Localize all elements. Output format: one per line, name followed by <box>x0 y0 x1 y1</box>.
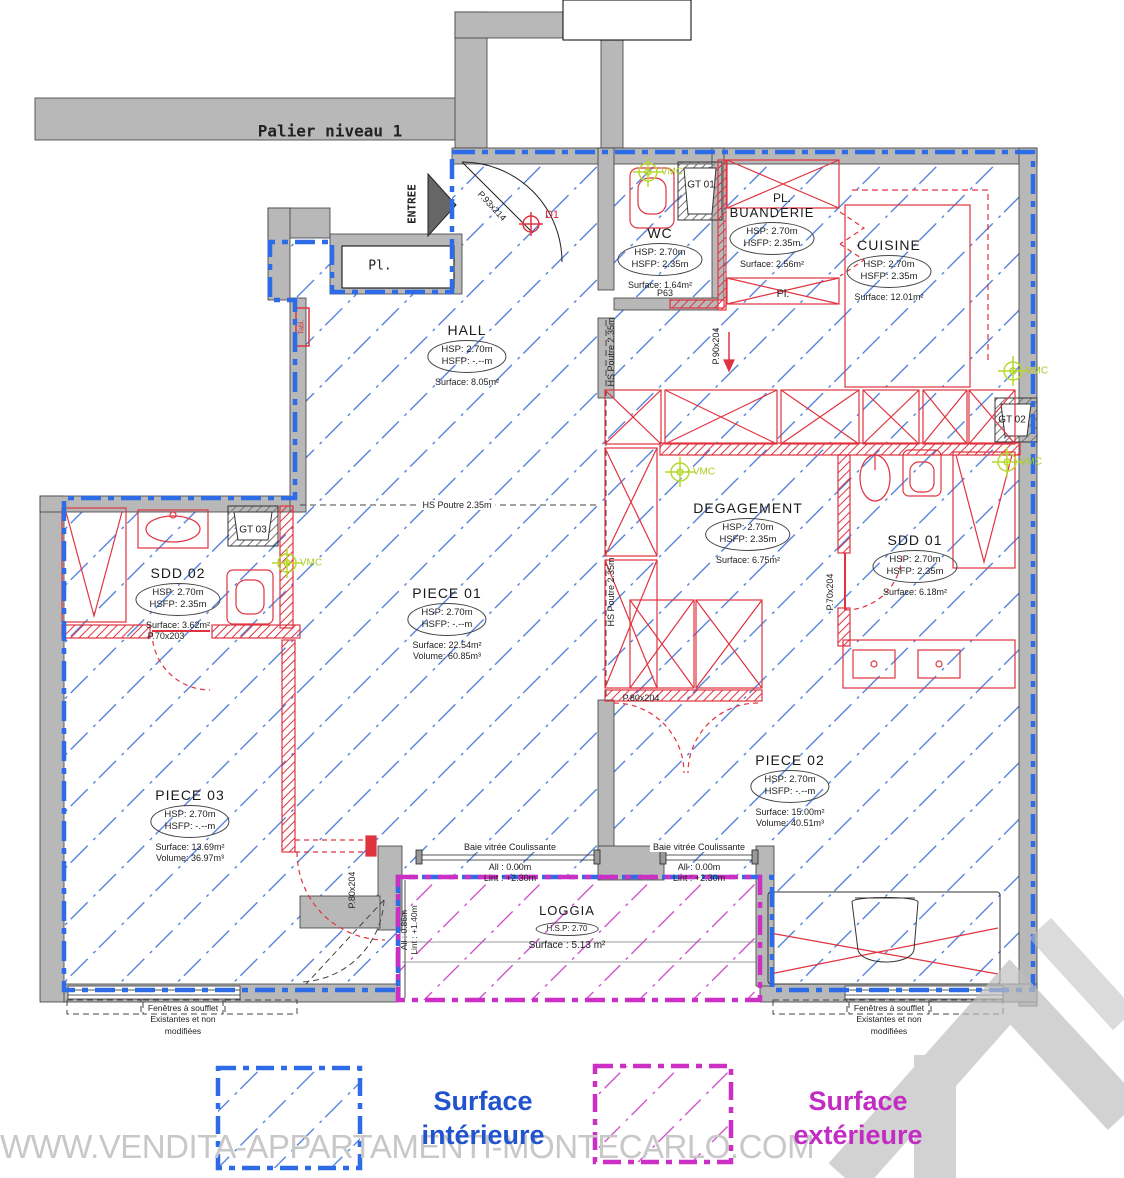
room-heights-oval: HSP: 2.70mHSFP: 2.35m <box>617 243 702 276</box>
door-p80-vertical-label: P.80x204 <box>347 872 357 909</box>
baie-all-label: All : 0.00m <box>678 862 721 872</box>
rail-all-label: All : 0.86m <box>399 910 409 950</box>
vmc-label: VMC <box>661 167 683 178</box>
entry-label: ENTREE <box>406 184 419 224</box>
baie-lint-label: Lint : +2.30m <box>673 873 725 883</box>
room-label-hall: HALL HSP: 2.70mHSFP: -.--m Surface: 8.05… <box>427 322 506 387</box>
room-heights-oval: HSP: 2.70mHSFP: 2.35m <box>872 550 957 583</box>
room-label-sdd01: SDD 01 HSP: 2.70mHSFP: 2.35m Surface: 6.… <box>872 532 957 597</box>
door-p90-label: P.90x204 <box>711 328 721 365</box>
beam-label: HS Poutre 2.35m <box>606 317 616 386</box>
vmc-label: VMC <box>300 558 322 569</box>
room-label-piece02: PIECE 02 HSP: 2.70mHSFP: -.--m Surface: … <box>750 752 829 828</box>
room-heights-oval: HSP: 2.70mHSFP: 2.35m <box>729 222 814 255</box>
room-heights-oval: HSP: 2.70mHSFP: -.--m <box>750 770 829 803</box>
soufflet-note-left: Fenêtres à soufflet Existantes et non mo… <box>128 1003 238 1037</box>
rail-lint-label: Lint : +1.40m <box>409 905 419 954</box>
tabl-label: Tabl. <box>299 320 306 335</box>
gt03-label: GT 03 <box>239 525 267 536</box>
baie-name-label: Baie vitrée Coulissante <box>461 842 559 852</box>
entry-closet-label: Pl. <box>368 259 391 274</box>
room-heights-oval: HSP: 2.70mHSFP: 2.35m <box>705 518 790 551</box>
room-heights-oval: HSP: 2.70mHSFP: -.--m <box>407 603 486 636</box>
plan-title: Palier niveau 1 <box>258 122 403 141</box>
vmc-label: VMC <box>1020 457 1042 468</box>
room-label-degagement: DEGAGEMENT HSP: 2.70mHSFP: 2.35m Surface… <box>693 500 803 565</box>
room-heights-oval: HSP: 2.70mHSFP: -.--m <box>427 340 506 373</box>
beam-label: HS Poutre 2.35m <box>606 557 616 626</box>
room-heights-oval: HSP: 2.70mHSFP: 2.35m <box>135 583 220 616</box>
closet-pl-upper-label: PL. <box>773 191 791 205</box>
room-heights-oval: H.S.P: 2.70 <box>536 922 599 936</box>
baie-all-label: All : 0.00m <box>489 862 532 872</box>
gt01-label: GT 01 <box>687 180 715 191</box>
room-label-cuisine: CUISINE HSP: 2.70mHSFP: 2.35m Surface: 1… <box>846 237 931 302</box>
room-label-wc: WC HSP: 2.70mHSFP: 2.35m Surface: 1.64m² <box>617 225 702 290</box>
soufflet-note-right: Fenêtres à soufflet Existantes et non mo… <box>834 1003 944 1037</box>
baie-lint-label: Lint : +2.30m <box>484 873 536 883</box>
legend-exterior-label: Surface extérieure <box>748 1085 968 1153</box>
room-heights-oval: HSP: 2.70mHSFP: 2.35m <box>846 255 931 288</box>
door-p63-label: P63 <box>657 288 673 298</box>
baie-name-label: Baie vitrée Coulissante <box>650 842 748 852</box>
d1-marker-label: D1 <box>545 209 559 221</box>
closet-pl-lower-label: Pl. <box>777 288 790 300</box>
room-label-loggia: LOGGIA H.S.P: 2.70 Surface : 5.13 m² <box>529 903 606 951</box>
room-label-piece03: PIECE 03 HSP: 2.70mHSFP: -.--m Surface: … <box>150 787 229 863</box>
room-label-piece01: PIECE 01 HSP: 2.70mHSFP: -.--m Surface: … <box>407 585 486 661</box>
room-label-buanderie: BUANDERIE HSP: 2.70mHSFP: 2.35m Surface:… <box>729 205 814 269</box>
room-heights-oval: HSP: 2.70mHSFP: -.--m <box>150 805 229 838</box>
floor-plan-page: WWW.VENDITA-APPARTAMENTI-MONTECARLO.COM … <box>0 0 1124 1178</box>
vmc-label: VMC <box>693 467 715 478</box>
room-label-sdd02: SDD 02 HSP: 2.70mHSFP: 2.35m Surface: 3.… <box>135 565 220 630</box>
door-p70-203-label: P.70x203 <box>148 631 185 641</box>
legend-interior-label: Surface intérieure <box>373 1085 593 1153</box>
door-p80-label: P.80x204 <box>623 693 660 703</box>
door-p70-204-label: P.70x204 <box>825 574 835 611</box>
beam-label: HS Poutre 2.35m <box>418 500 495 510</box>
vmc-label: VMC <box>1026 366 1048 377</box>
gt02-label: GT 02 <box>998 415 1026 426</box>
